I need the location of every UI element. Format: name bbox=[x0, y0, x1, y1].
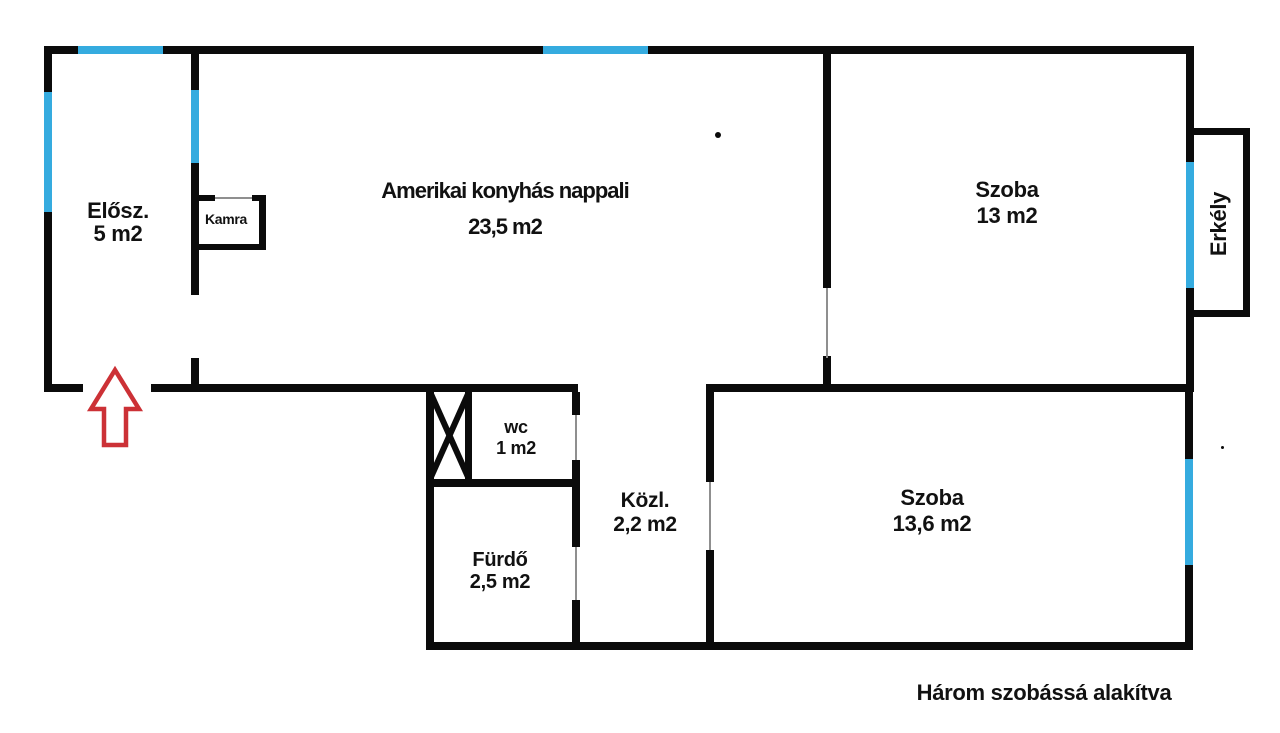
door-line-szoba1 bbox=[826, 288, 828, 358]
window-left-wall bbox=[44, 92, 52, 212]
room-name: Elősz. bbox=[87, 199, 149, 222]
wall-kozl-szoba2-lower bbox=[706, 550, 714, 648]
room-name: Közl. bbox=[613, 489, 677, 513]
room-area: 1 m2 bbox=[496, 438, 536, 459]
window-top-left bbox=[78, 46, 163, 54]
room-label-szoba1: Szoba 13 m2 bbox=[975, 177, 1038, 229]
room-name: Erkély bbox=[1208, 192, 1230, 256]
wall-balcony-bottom bbox=[1194, 310, 1250, 317]
room-name: Fürdő bbox=[470, 549, 530, 571]
wall-balcony-right bbox=[1243, 128, 1250, 317]
door-line-szoba2 bbox=[709, 482, 711, 550]
caption-text: Három szobássá alakítva bbox=[917, 680, 1172, 706]
window-szoba2 bbox=[1185, 459, 1193, 565]
room-area: 5 m2 bbox=[87, 222, 149, 245]
wall-nappali-szoba1 bbox=[823, 54, 831, 288]
door-line-kamra bbox=[215, 197, 252, 199]
room-label-furdo: Fürdő 2,5 m2 bbox=[470, 549, 530, 593]
wall-kamra-bottom bbox=[196, 244, 266, 250]
room-label-eloszoba: Elősz. 5 m2 bbox=[87, 199, 149, 245]
window-top-center bbox=[543, 46, 648, 54]
shaft-x-icon bbox=[426, 392, 473, 479]
wall-furdo-top bbox=[426, 479, 580, 487]
room-label-szoba2: Szoba 13,6 m2 bbox=[893, 485, 972, 537]
wall-wc-right-upper bbox=[572, 392, 580, 415]
room-name: Amerikai konyhás nappali bbox=[381, 173, 628, 209]
room-label-wc: wc 1 m2 bbox=[496, 417, 536, 459]
door-line-wc bbox=[575, 415, 577, 460]
wall-mid-left bbox=[151, 384, 578, 392]
wall-kamra-top-left bbox=[196, 195, 215, 201]
wall-mid-right bbox=[706, 384, 1193, 392]
room-name: Szoba bbox=[975, 177, 1038, 203]
window-eloszoba-right bbox=[191, 90, 199, 163]
room-name: Kamra bbox=[205, 212, 247, 226]
plan-dot-right bbox=[1221, 446, 1224, 449]
wall-bottom-main bbox=[426, 642, 1193, 650]
wall-eloszoba-bottom bbox=[44, 384, 83, 392]
room-name: wc bbox=[496, 417, 536, 438]
entrance-arrow-icon bbox=[88, 364, 144, 450]
room-area: 13,6 m2 bbox=[893, 511, 972, 537]
wall-nappali-szoba1-stub bbox=[823, 356, 831, 384]
door-line-furdo bbox=[575, 547, 577, 600]
wall-kamra-right bbox=[259, 195, 266, 250]
wall-kozl-szoba2-upper bbox=[706, 392, 714, 482]
room-name: Szoba bbox=[893, 485, 972, 511]
room-label-erkely: Erkély bbox=[1208, 192, 1230, 256]
room-label-kozlekedo: Közl. 2,2 m2 bbox=[613, 489, 677, 537]
wall-balcony-top bbox=[1194, 128, 1250, 135]
window-balcony bbox=[1186, 162, 1194, 288]
plan-dot-top bbox=[715, 132, 721, 138]
room-label-nappali: Amerikai konyhás nappali 23,5 m2 bbox=[381, 173, 628, 245]
room-label-kamra: Kamra bbox=[205, 212, 247, 226]
wall-wc-furdo-right-mid bbox=[572, 460, 580, 547]
room-area: 23,5 m2 bbox=[381, 209, 628, 245]
room-area: 2,2 m2 bbox=[613, 513, 677, 537]
wall-furdo-right-lower bbox=[572, 600, 580, 642]
wall-eloszoba-right-stub bbox=[191, 358, 199, 384]
floor-plan: Elősz. 5 m2 Kamra Amerikai konyhás nappa… bbox=[0, 0, 1280, 733]
room-area: 13 m2 bbox=[975, 203, 1038, 229]
room-area: 2,5 m2 bbox=[470, 571, 530, 593]
